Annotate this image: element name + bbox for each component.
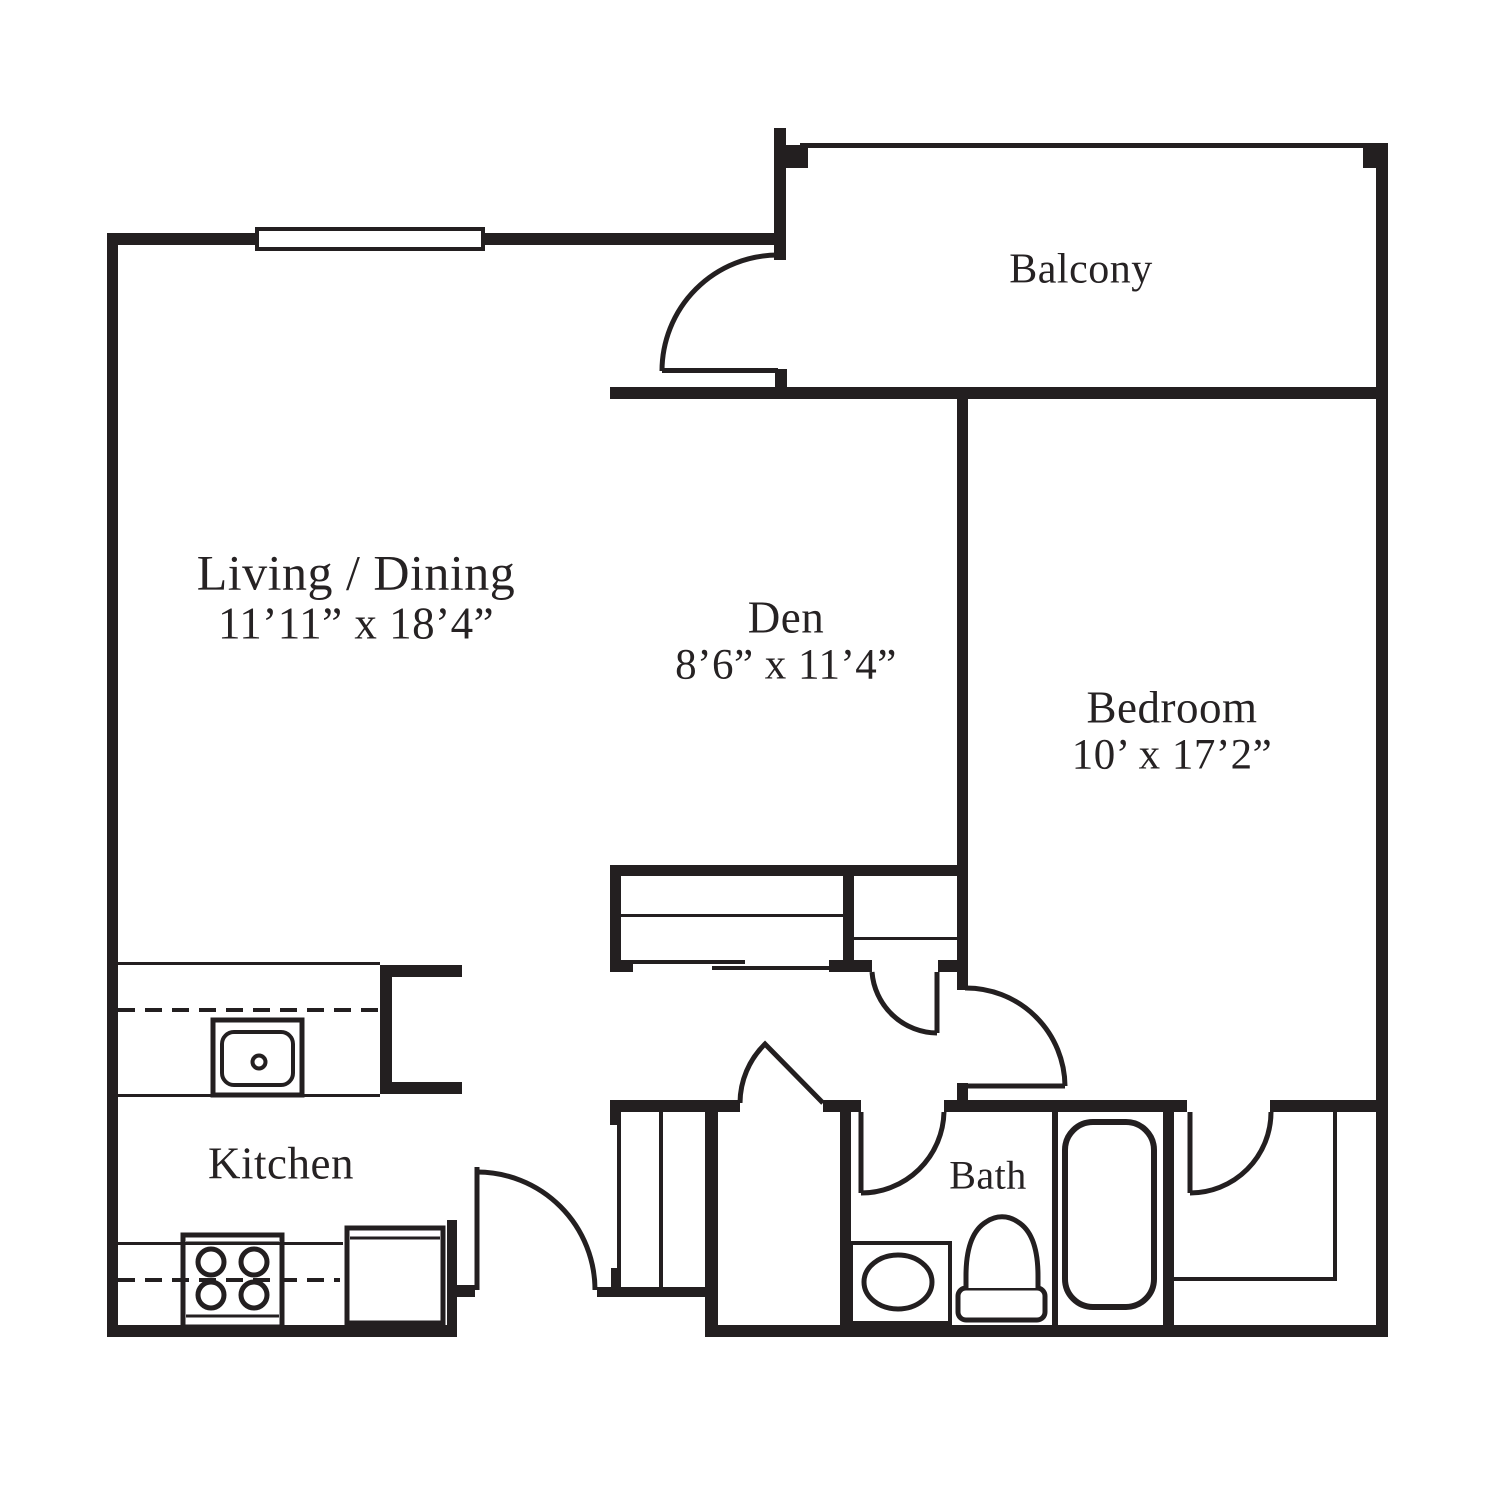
sink-bowl bbox=[864, 1255, 932, 1309]
burner bbox=[198, 1282, 224, 1308]
den-label: Den bbox=[675, 593, 897, 642]
refrigerator bbox=[347, 1228, 443, 1323]
bathtub bbox=[1065, 1122, 1154, 1307]
wall-segment bbox=[774, 128, 786, 260]
wall-segment bbox=[854, 960, 872, 972]
wall-segment bbox=[447, 1220, 457, 1337]
door-leaf bbox=[662, 368, 778, 373]
window-frame bbox=[257, 229, 483, 249]
door-swing-arc bbox=[740, 1044, 823, 1103]
living-dining-label: Living / Dining bbox=[197, 546, 516, 600]
refrigerator-outline bbox=[347, 1228, 443, 1323]
burner bbox=[241, 1282, 267, 1308]
sink-basin bbox=[222, 1032, 293, 1085]
toilet-bowl bbox=[966, 1217, 1038, 1288]
den-dimensions: 8’6” x 11’4” bbox=[675, 642, 897, 688]
entry-closet-front bbox=[617, 1125, 621, 1288]
wall-segment bbox=[610, 960, 633, 972]
wall-segment bbox=[843, 865, 854, 972]
wall-segment bbox=[447, 1285, 475, 1297]
wall-segment bbox=[800, 143, 1370, 148]
wall-segment bbox=[1052, 1112, 1058, 1325]
wall-segment bbox=[1376, 148, 1388, 1337]
wall-segment bbox=[957, 399, 968, 990]
bathtub-outline bbox=[1065, 1122, 1154, 1307]
door-swing-arc bbox=[1190, 1112, 1271, 1193]
sink-drain bbox=[253, 1056, 266, 1069]
balcony-label: Balcony bbox=[1009, 247, 1152, 292]
hall-storage-door bbox=[740, 1044, 823, 1103]
wall-segment bbox=[1163, 1112, 1174, 1325]
label-living-dining: Living / Dining 11’11” x 18’4” bbox=[197, 546, 516, 649]
den-closet-sliding-door bbox=[633, 960, 745, 964]
bathroom-sink bbox=[851, 1243, 950, 1323]
wall-segment bbox=[597, 1287, 705, 1297]
wall-segment bbox=[380, 965, 392, 1094]
wall-segment bbox=[705, 1325, 1388, 1337]
wall-segment bbox=[938, 960, 957, 972]
walls-interior bbox=[380, 399, 1376, 1337]
floor-plan-drawing bbox=[0, 0, 1506, 1506]
den-closet-shelf-line bbox=[621, 914, 843, 917]
wall-segment bbox=[705, 1100, 718, 1325]
entry-door bbox=[477, 1167, 595, 1290]
wall-segment bbox=[1270, 1100, 1376, 1112]
door-swing-arc bbox=[872, 972, 937, 1033]
door-swing-arc bbox=[861, 1112, 944, 1193]
window bbox=[257, 229, 483, 249]
wall-segment bbox=[610, 387, 1376, 399]
wall-segment bbox=[610, 865, 621, 972]
door-swing-arc bbox=[662, 255, 778, 371]
label-den: Den 8’6” x 11’4” bbox=[675, 593, 897, 688]
hall-closet-door bbox=[872, 972, 937, 1033]
toilet bbox=[958, 1217, 1045, 1320]
label-kitchen: Kitchen bbox=[208, 1140, 354, 1189]
wall-segment bbox=[610, 1112, 621, 1125]
bedroom-dimensions: 10’ x 17’2” bbox=[1072, 732, 1273, 778]
living-dining-dimensions: 11’11” x 18’4” bbox=[197, 600, 516, 649]
kitchen-label: Kitchen bbox=[208, 1140, 354, 1189]
bedroom-closet-line bbox=[1172, 1277, 1337, 1281]
bedroom-label: Bedroom bbox=[1072, 683, 1273, 732]
bedroom-closet-door bbox=[1190, 1112, 1271, 1193]
bath-door bbox=[861, 1112, 944, 1193]
label-balcony: Balcony bbox=[1009, 247, 1152, 292]
bath-label: Bath bbox=[949, 1153, 1027, 1196]
door-swing-arc bbox=[965, 988, 1065, 1086]
toilet-tank bbox=[958, 1288, 1045, 1320]
entry-closet-front bbox=[659, 1112, 663, 1288]
wall-segment bbox=[944, 1100, 1187, 1112]
balcony-door bbox=[662, 255, 778, 373]
wall-segment bbox=[823, 1100, 861, 1112]
kitchen-sink bbox=[213, 1020, 302, 1095]
wall-segment bbox=[610, 1100, 740, 1112]
floor-plan: Balcony Living / Dining 11’11” x 18’4” D… bbox=[0, 0, 1506, 1506]
den-closet-sliding-door bbox=[712, 966, 830, 970]
wall-segment bbox=[786, 145, 808, 168]
label-bath: Bath bbox=[949, 1153, 1027, 1196]
wall-segment bbox=[829, 960, 854, 972]
bedroom-closet-line bbox=[1333, 1112, 1337, 1280]
burner bbox=[241, 1249, 267, 1275]
bedroom-door bbox=[965, 988, 1065, 1086]
kitchen-counter-edge bbox=[118, 962, 380, 965]
wall-segment bbox=[610, 865, 958, 876]
door-swing-arc bbox=[477, 1172, 595, 1290]
wall-segment bbox=[388, 1082, 462, 1094]
label-bedroom: Bedroom 10’ x 17’2” bbox=[1072, 683, 1273, 778]
hall-closet-shelf-line bbox=[854, 937, 958, 940]
wall-segment bbox=[380, 965, 462, 977]
wall-segment bbox=[107, 233, 118, 1337]
burner bbox=[198, 1249, 224, 1275]
